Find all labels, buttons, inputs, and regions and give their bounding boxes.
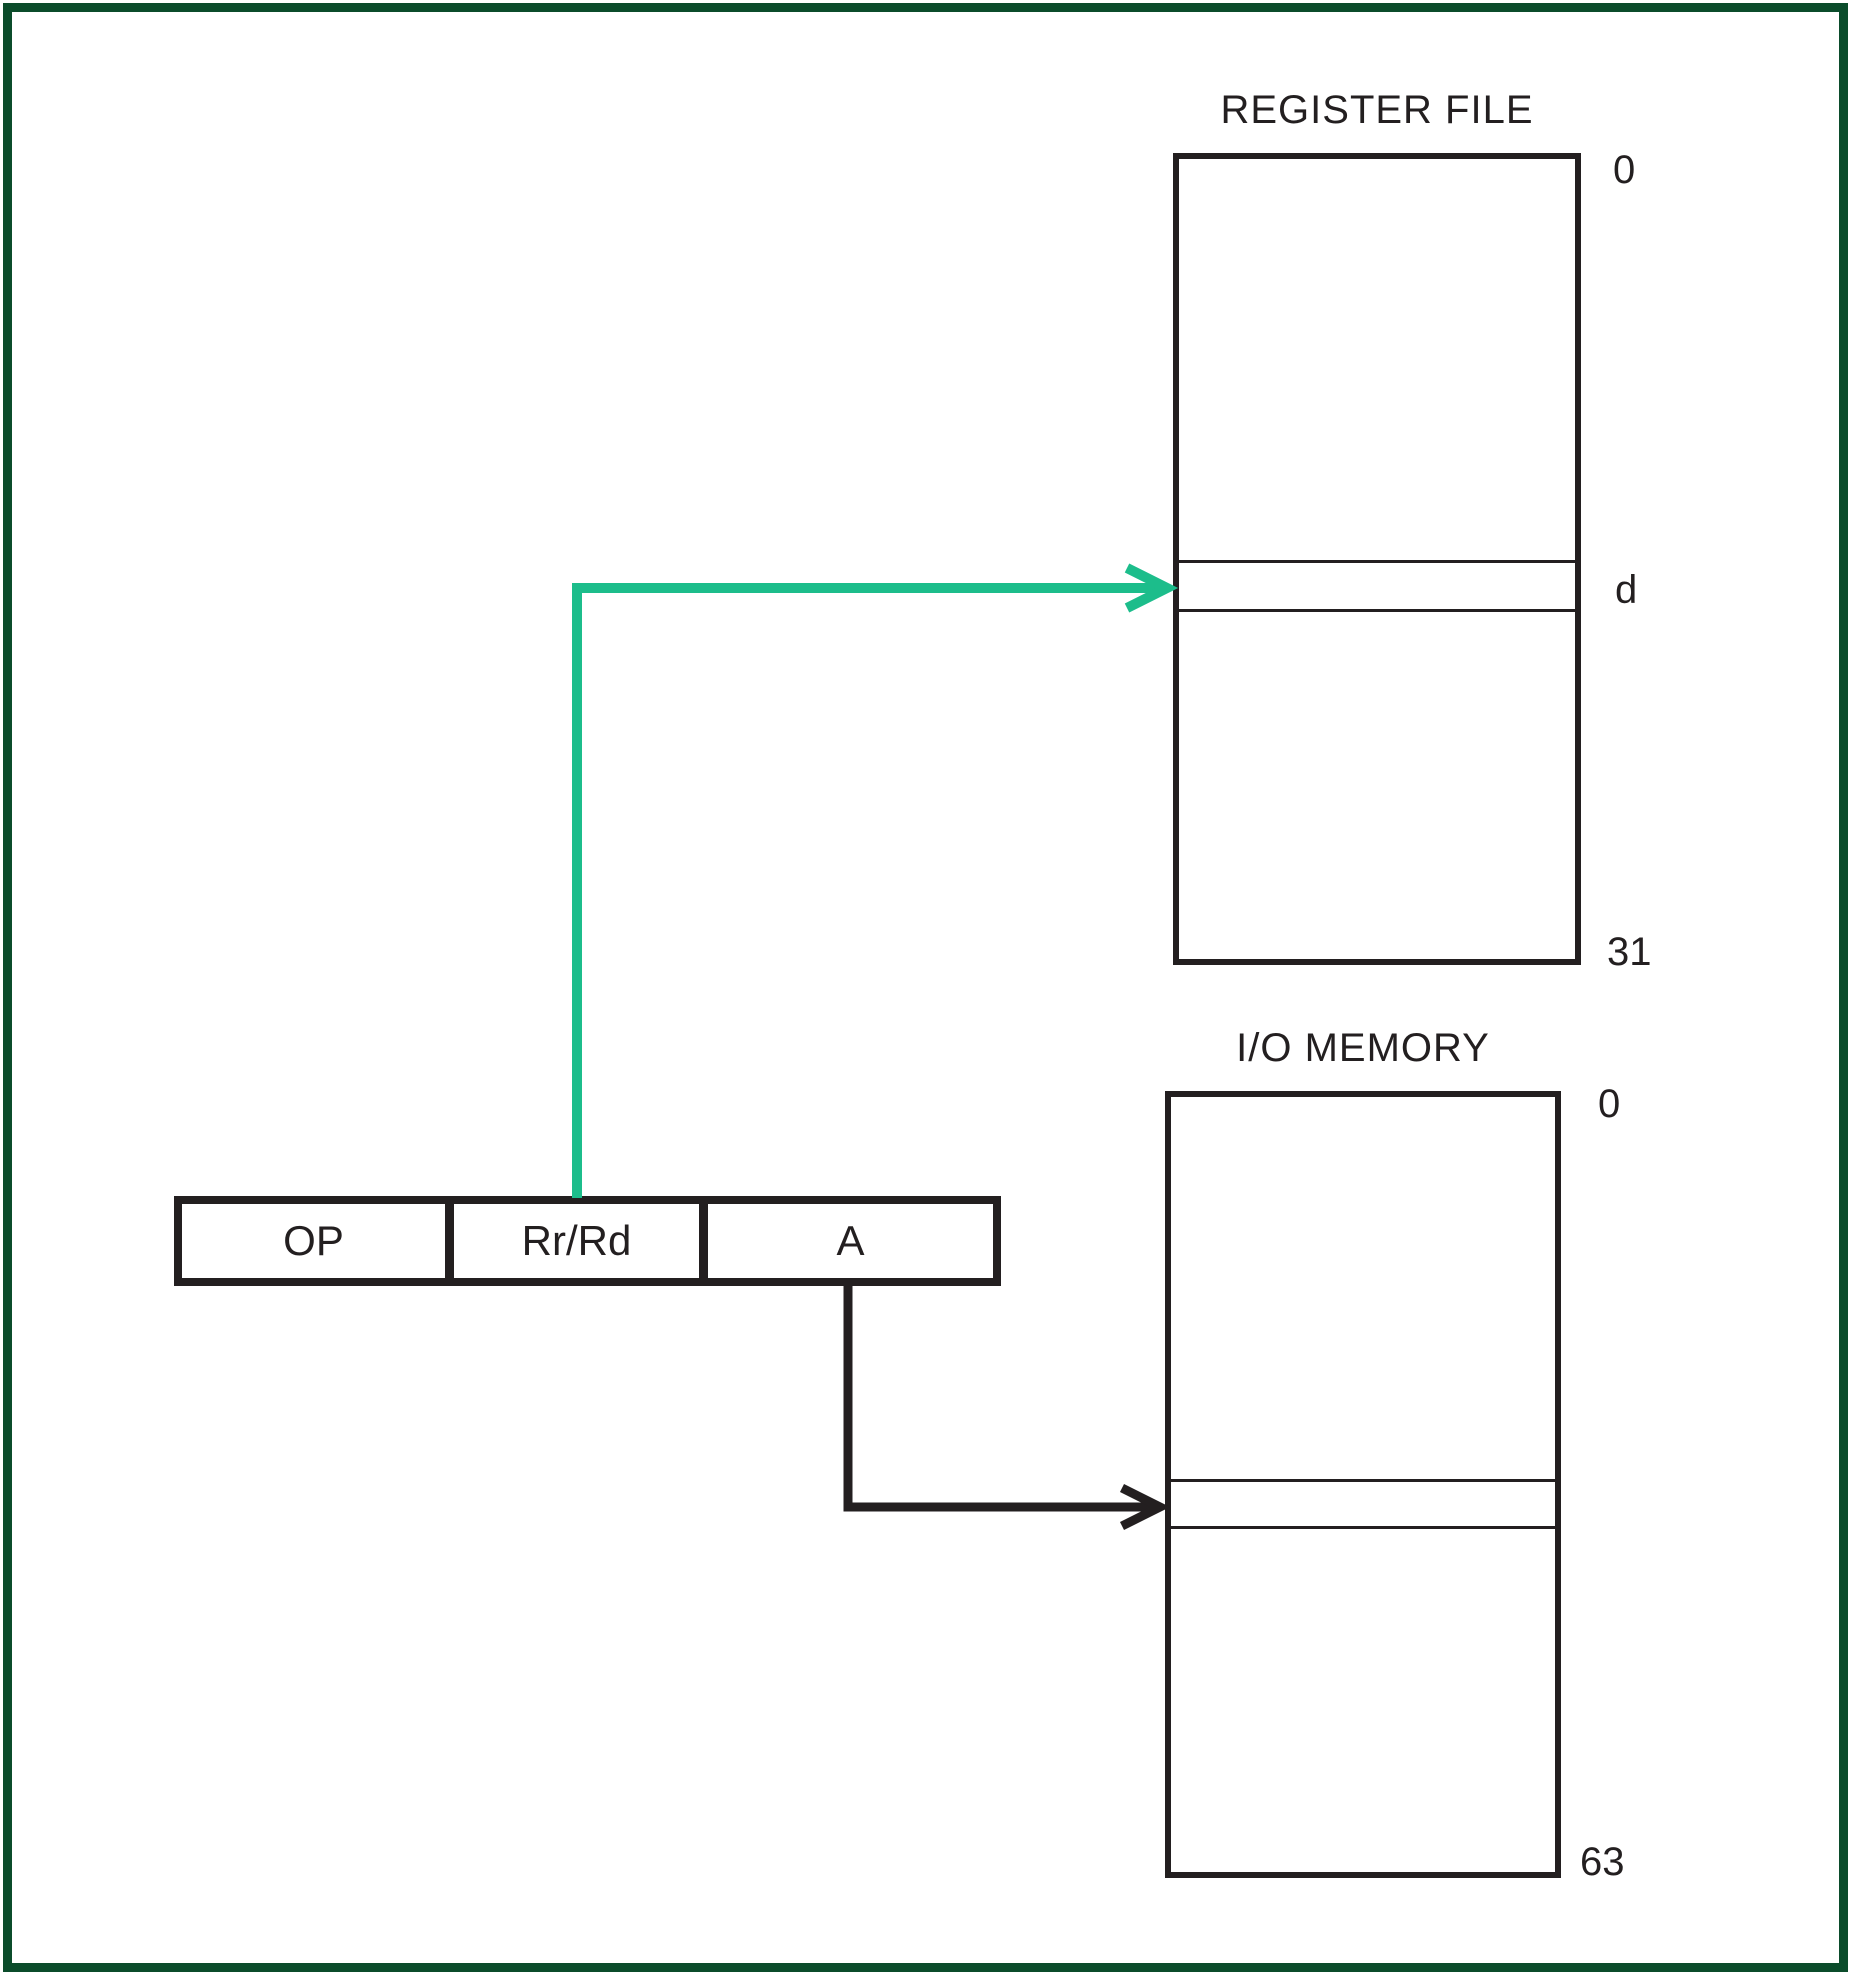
register-file-box [1173, 153, 1581, 965]
rd-arrow-head-chevron [1127, 568, 1167, 608]
address-arrow-elbow-line [848, 1284, 1150, 1507]
io-memory-top-index: 0 [1598, 1082, 1620, 1127]
register-file-title: REGISTER FILE [1173, 88, 1581, 133]
rd-to-register-file-arrow [577, 568, 1167, 1198]
io-memory-row-a [1171, 1479, 1555, 1529]
io-memory-bottom-index: 63 [1580, 1840, 1625, 1885]
address-arrow-head-chevron [1122, 1488, 1160, 1526]
instruction-word-box: OP Rr/Rd A [174, 1196, 1001, 1286]
io-direct-addressing-diagram: { "colors": { "frame_green": "#0b4c2b", … [0, 0, 1851, 1975]
instruction-field-op: OP [182, 1204, 445, 1278]
register-file-top-index: 0 [1613, 148, 1635, 193]
instruction-field-rr-rd: Rr/Rd [454, 1204, 699, 1278]
register-file-row-index: d [1615, 568, 1637, 613]
address-to-io-memory-arrow [848, 1284, 1160, 1526]
rd-arrow-elbow-line [577, 588, 1158, 1198]
io-memory-title: I/O MEMORY [1165, 1026, 1561, 1071]
register-file-row-d [1179, 560, 1575, 612]
register-file-bottom-index: 31 [1607, 930, 1652, 975]
instruction-field-a: A [708, 1204, 993, 1278]
